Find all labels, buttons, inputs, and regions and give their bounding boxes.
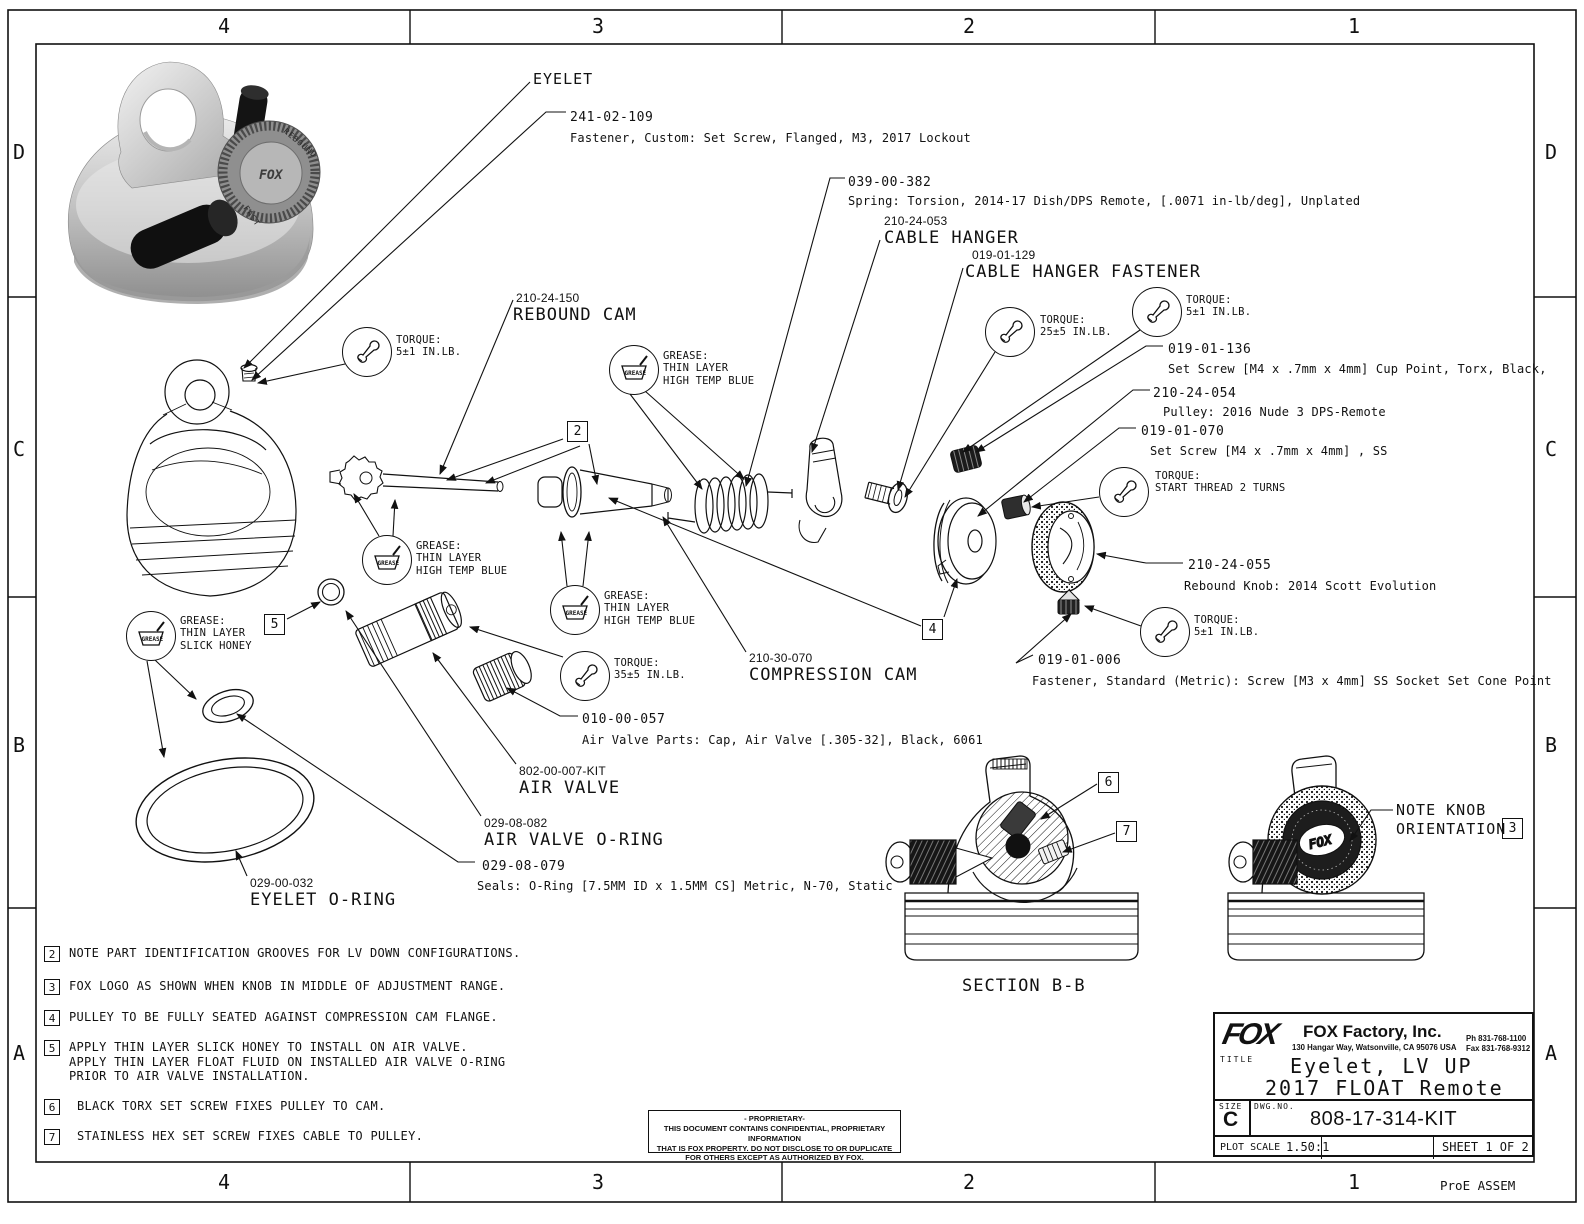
callout-set-screw-136: 019-01-136 Set Screw [M4 x .7mm x 4mm] C… [1168,342,1547,376]
note-line: APPLY THIN LAYER FLOAT FLUID ON INSTALLE… [69,1055,505,1070]
knob-note-line2: ORIENTATION [1396,820,1506,839]
title-label: TITLE [1220,1055,1254,1064]
part-name: AIR VALVE O-RING [484,830,664,850]
flag-5: 5 [264,614,285,635]
part-number: 210-24-053 [884,214,1019,228]
wrench-hand-icon [994,316,1026,348]
part-desc: Set Screw [M4 x .7mm x 4mm] Cup Point, T… [1168,362,1547,376]
note-text: BLACK TORX SET SCREW FIXES PULLEY TO CAM… [77,1099,386,1114]
wrench-hand-icon [1141,296,1173,328]
proprietary-line: - PROPRIETARY- [649,1114,900,1124]
svg-text:GREASE: GREASE [566,610,588,617]
part-desc: Spring: Torsion, 2014-17 Dish/DPS Remote… [848,194,1360,208]
torque-label: TORQUE: [1040,314,1112,326]
callout-rebound-cam: 210-24-150 REBOUND CAM [516,291,637,325]
proprietary-line: THIS DOCUMENT CONTAINS CONFIDENTIAL, PRO… [649,1124,900,1144]
proprietary-notice: - PROPRIETARY- THIS DOCUMENT CONTAINS CO… [648,1110,901,1153]
wrench-hand-icon [1108,476,1140,508]
company-fax: Fax 831-768-9312 [1466,1044,1530,1053]
part-number: 210-30-070 [749,651,918,665]
knob-note-line1: NOTE KNOB [1396,801,1506,820]
rebound-cam-part [330,456,503,500]
fox-logo: FOX [1219,1018,1279,1052]
title-block: FOX FOX Factory, Inc. 130 Hangar Way, Wa… [1213,1012,1534,1157]
part-number: 010-00-057 [582,712,983,727]
note-text: PULLEY TO BE FULLY SEATED AGAINST COMPRE… [69,1010,498,1025]
torque-label: TORQUE: [614,657,686,669]
callout-set-screw-070: 019-01-070 Set Screw [M4 x .7mm x 4mm] ,… [1141,424,1388,458]
grease-label: GREASE: [663,350,754,362]
knob-orientation-note: NOTE KNOB ORIENTATION [1396,801,1506,839]
torque-label: TORQUE: [396,334,461,346]
torque-symbol [1132,287,1182,337]
part-number: 210-24-055 [1188,558,1436,573]
part-name: CABLE HANGER [884,228,1019,248]
air-valve-part [355,589,466,668]
rebound-knob-part [1032,502,1094,592]
note-text: APPLY THIN LAYER SLICK HONEY TO INSTALL … [69,1040,505,1084]
eyelet-cap-lineart [127,360,296,596]
grease-label: GREASE: [604,590,695,602]
grease-tub-icon: GREASE [616,353,652,387]
callout-rebound-knob: 210-24-055 Rebound Knob: 2014 Scott Evol… [1188,558,1436,593]
callout-seal-oring: 029-08-079 Seals: O-Ring [7.5MM ID x 1.5… [482,859,893,893]
torque-symbol [342,327,392,377]
grease-tub-icon: GREASE [557,593,593,627]
torque-note-air-valve: TORQUE: 35±5 IN.LB. [614,657,686,682]
flag-4: 4 [922,619,943,640]
zone-col-4-top: 4 [218,14,230,38]
callout-fastener-241: 241-02-109 Fastener, Custom: Set Screw, … [570,110,971,145]
grease-line: THIN LAYER [180,627,252,639]
note-text: STAINLESS HEX SET SCREW FIXES CABLE TO P… [77,1129,423,1144]
grease-symbol: GREASE [609,345,659,395]
callout-fastener-006: 019-01-006 Fastener, Standard (Metric): … [1038,653,1552,688]
part-name: COMPRESSION CAM [749,665,918,685]
grease-label: GREASE: [180,615,252,627]
note-row-7: 7 STAINLESS HEX SET SCREW FIXES CABLE TO… [44,1129,423,1145]
callout-eyelet: EYELET [533,70,593,88]
grease-line: HIGH TEMP BLUE [663,375,754,387]
grease-note-slick-honey: GREASE: THIN LAYER SLICK HONEY [180,615,252,652]
part-desc: Fastener, Custom: Set Screw, Flanged, M3… [570,131,971,145]
svg-text:GREASE: GREASE [625,370,647,377]
flag-2: 2 [567,421,588,442]
note-line: PRIOR TO AIR VALVE INSTALLATION. [69,1069,505,1084]
part-number: 802-00-007-KIT [519,764,620,778]
part-desc: Pulley: 2016 Nude 3 DPS-Remote [1163,405,1386,419]
part-name: AIR VALVE [519,778,620,798]
torque-value: 5±1 IN.LB. [1194,626,1259,638]
grease-line: THIN LAYER [416,552,507,564]
svg-text:GREASE: GREASE [142,636,164,643]
part-number: 241-02-109 [570,110,971,125]
torque-symbol [1140,607,1190,657]
callout-pulley: 210-24-054 Pulley: 2016 Nude 3 DPS-Remot… [1153,386,1386,419]
cone-set-screw-part [1058,590,1079,614]
knob-orientation-view: FOX [1228,756,1424,960]
torque-note-cable-hanger: TORQUE: 25±5 IN.LB. [1040,314,1112,339]
note-row-4: 4 PULLEY TO BE FULLY SEATED AGAINST COMP… [44,1010,498,1026]
torque-label: TORQUE: [1194,614,1259,626]
callout-air-valve-cap: 010-00-057 Air Valve Parts: Cap, Air Val… [582,712,983,747]
note-ref-box: 3 [44,979,60,995]
ss-set-screw-part [1001,494,1032,519]
wrench-hand-icon [1149,616,1181,648]
compression-cam-part [538,467,672,517]
zone-row-d-right: D [1545,140,1557,164]
plot-scale-value: 1.50:1 [1286,1140,1329,1154]
company-name: FOX Factory, Inc. [1303,1022,1442,1042]
grease-symbol: GREASE [550,585,600,635]
part-number: 039-00-382 [848,175,1360,190]
part-desc: Air Valve Parts: Cap, Air Valve [.305-32… [582,733,983,747]
grease-line: SLICK HONEY [180,640,252,652]
grease-symbol: GREASE [362,535,412,585]
drawing-title-line1: Eyelet, LV UP [1290,1054,1473,1078]
zone-col-1-bottom: 1 [1348,1170,1360,1194]
torque-symbol [1099,467,1149,517]
note-ref-box: 5 [44,1040,60,1056]
size-value: C [1223,1108,1238,1132]
wrench-hand-icon [351,336,383,368]
torque-value: 25±5 IN.LB. [1040,326,1112,338]
part-desc: Fastener, Standard (Metric): Screw [M3 x… [1032,674,1552,688]
eyelet-oring-part [127,744,323,877]
torque-value: 5±1 IN.LB. [396,346,461,358]
torque-note-set-screw: TORQUE: 5±1 IN.LB. [1186,294,1251,319]
part-number: 019-01-006 [1038,653,1552,668]
proe-assem-label: ProE ASSEM [1440,1178,1515,1193]
section-bb-label: SECTION B-B [962,976,1086,996]
company-address: 130 Hangar Way, Watsonville, CA 95076 US… [1292,1043,1457,1052]
eyelet-3d-render: REBOUND FAST FOX [68,62,320,304]
part-desc: Set Screw [M4 x .7mm x 4mm] , SS [1150,444,1388,458]
part-number: 210-24-150 [516,291,637,305]
drawing-sheet: REBOUND FAST FOX [0,0,1584,1224]
torque-note-start-thread: TORQUE: START THREAD 2 TURNS [1155,470,1285,495]
part-number: 210-24-054 [1153,386,1386,401]
note-ref-box: 4 [44,1010,60,1026]
drawing-title-line2: 2017 FLOAT Remote [1265,1076,1504,1100]
dwg-no-label: DWG.NO. [1254,1102,1295,1111]
grease-line: THIN LAYER [663,362,754,374]
note-ref-box: 6 [44,1099,60,1115]
note-line: APPLY THIN LAYER SLICK HONEY TO INSTALL … [69,1040,505,1055]
torx-set-screw-part [950,445,982,473]
proprietary-line: THAT IS FOX PROPERTY. DO NOT DISCLOSE TO… [649,1144,900,1154]
part-name: REBOUND CAM [513,305,637,325]
grease-line: THIN LAYER [604,602,695,614]
grease-note-compression-cam: GREASE: THIN LAYER HIGH TEMP BLUE [604,590,695,627]
grease-label: GREASE: [416,540,507,552]
note-row-3: 3 FOX LOGO AS SHOWN WHEN KNOB IN MIDDLE … [44,979,505,995]
grease-note-rebound-cam: GREASE: THIN LAYER HIGH TEMP BLUE [416,540,507,577]
part-name: EYELET O-RING [250,890,396,910]
torque-symbol [560,651,610,701]
torque-note-cone-screw: TORQUE: 5±1 IN.LB. [1194,614,1259,639]
proprietary-line: FOR OTHERS EXCEPT AS AUTHORIZED BY FOX. [649,1153,900,1163]
part-name: CABLE HANGER FASTENER [965,262,1201,282]
grease-line: HIGH TEMP BLUE [604,615,695,627]
zone-col-3-bottom: 3 [592,1170,604,1194]
zone-row-c-left: C [13,437,25,461]
note-ref-box: 2 [44,946,60,962]
torque-note-rebound-screw: TORQUE: 5±1 IN.LB. [396,334,461,359]
part-number: 019-01-136 [1168,342,1547,357]
sheet-number: SHEET 1 OF 2 [1442,1140,1529,1154]
note-row-6: 6 BLACK TORX SET SCREW FIXES PULLEY TO C… [44,1099,386,1115]
zone-row-a-left: A [13,1041,25,1065]
company-phone: Ph 831-768-1100 [1466,1034,1526,1043]
grease-note-spring: GREASE: THIN LAYER HIGH TEMP BLUE [663,350,754,387]
callout-cable-hanger-fastener: 019-01-129 CABLE HANGER FASTENER [972,248,1201,282]
torque-value: START THREAD 2 TURNS [1155,482,1285,494]
callout-compression-cam: 210-30-070 COMPRESSION CAM [749,651,918,685]
flag-6: 6 [1098,772,1119,793]
part-number: 019-01-129 [972,248,1201,262]
note-row-5: 5 APPLY THIN LAYER SLICK HONEY TO INSTAL… [44,1040,505,1084]
torque-value: 35±5 IN.LB. [614,669,686,681]
flanged-set-screw-241 [241,365,257,382]
grease-tub-icon: GREASE [369,543,405,577]
wrench-hand-icon [569,660,601,692]
plot-scale-label: PLOT SCALE [1220,1142,1280,1153]
zone-row-a-right: A [1545,1041,1557,1065]
grease-line: HIGH TEMP BLUE [416,565,507,577]
torque-label: TORQUE: [1155,470,1285,482]
dwg-no-value: 808-17-314-KIT [1310,1108,1457,1131]
callout-air-valve-oring: 029-08-082 AIR VALVE O-RING [484,816,664,850]
cable-hanger-part [799,438,842,542]
grease-tub-icon: GREASE [133,619,169,653]
note-text: FOX LOGO AS SHOWN WHEN KNOB IN MIDDLE OF… [69,979,505,994]
zone-col-3-top: 3 [592,14,604,38]
part-number: 029-08-079 [482,859,893,874]
zone-col-4-bottom: 4 [218,1170,230,1194]
zone-col-2-bottom: 2 [963,1170,975,1194]
part-number: 019-01-070 [1141,424,1388,439]
zone-row-c-right: C [1545,437,1557,461]
cable-hanger-fastener-part [863,475,910,514]
torque-symbol [985,307,1035,357]
note-ref-box: 7 [44,1129,60,1145]
torsion-spring-part [668,474,792,533]
callout-air-valve: 802-00-007-KIT AIR VALVE [519,764,620,798]
zone-row-d-left: D [13,140,25,164]
part-number: 029-00-032 [250,876,396,890]
air-valve-oring-part [318,579,344,605]
part-desc: Rebound Knob: 2014 Scott Evolution [1184,579,1436,593]
part-desc: Seals: O-Ring [7.5MM ID x 1.5MM CS] Metr… [477,879,893,893]
zone-row-b-left: B [13,733,25,757]
flag-7: 7 [1116,821,1137,842]
svg-text:GREASE: GREASE [378,560,400,567]
note-row-2: 2 NOTE PART IDENTIFICATION GROOVES FOR L… [44,946,520,962]
torque-value: 5±1 IN.LB. [1186,306,1251,318]
zone-row-b-right: B [1545,733,1557,757]
torque-label: TORQUE: [1186,294,1251,306]
callout-eyelet-oring: 029-00-032 EYELET O-RING [250,876,396,910]
pulley-part [934,498,996,584]
zone-col-2-top: 2 [963,14,975,38]
part-number: 029-08-082 [484,816,664,830]
zone-col-1-top: 1 [1348,14,1360,38]
callout-spring-039: 039-00-382 Spring: Torsion, 2014-17 Dish… [848,175,1360,208]
note-text: NOTE PART IDENTIFICATION GROOVES FOR LV … [69,946,520,961]
grease-symbol: GREASE [126,611,176,661]
render-knob-fox-text: FOX [259,168,284,183]
air-valve-cap-part [472,648,536,703]
callout-cable-hanger: 210-24-053 CABLE HANGER [884,214,1019,248]
